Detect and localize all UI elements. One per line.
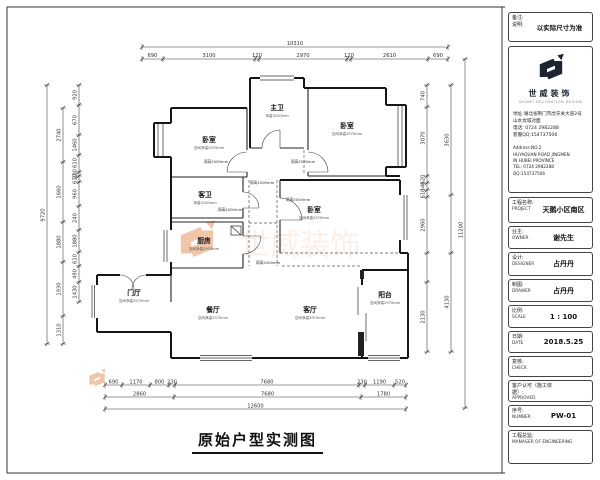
- dim-label: 7680: [261, 392, 274, 398]
- titleblock-field-owner: 业主: OWNER 谢先生: [508, 226, 593, 249]
- dim-label: 1460: [73, 138, 79, 151]
- room-height: 空间净高2970mm: [332, 131, 363, 136]
- room-height: 净高3200mm: [265, 113, 289, 118]
- room-name: 卧室: [307, 205, 321, 214]
- titleblock-field-designer: 设计: DESIGNER 占丹丹: [508, 252, 593, 276]
- dim-label: 2130: [421, 310, 427, 323]
- dim-label: 610: [73, 158, 79, 168]
- field-value: 谢先生: [537, 227, 590, 248]
- dim-label: 960: [73, 189, 79, 199]
- watermark: 世威装饰: [89, 220, 360, 386]
- field-value: 占丹丹: [537, 280, 590, 301]
- door-height-label: 洞高2000mm: [256, 260, 281, 265]
- dim-chain-right-outer: [448, 83, 454, 354]
- dim-label: 1660: [57, 185, 63, 198]
- field-value: [537, 431, 590, 463]
- field-value: 占丹丹: [537, 253, 590, 275]
- room-name: 主卫: [270, 103, 284, 112]
- room-name: 客厅: [302, 305, 317, 314]
- titleblock-field-scale: 比例: SCALE 1 : 100: [508, 305, 593, 328]
- field-value: 1 : 100: [537, 306, 590, 327]
- room-height: 空间净高2970mm: [299, 215, 330, 220]
- door-height-label: 洞高2000mm: [250, 180, 275, 185]
- dim-label: 690: [433, 53, 443, 59]
- titleblock-field-date: 日期: DATE 2018.5.25: [508, 331, 593, 353]
- titleblock-field-manager: 工程总监: MANAGER OF ENGINEERING: [508, 430, 593, 464]
- dim-label: 2740: [57, 128, 63, 141]
- room-height: 空间净高2970mm: [370, 300, 401, 305]
- dim-chain-bottom-row2: [103, 394, 408, 400]
- door-height-label: 洞高2000mm: [218, 207, 243, 212]
- dim-label: 11200: [459, 222, 465, 239]
- dim-label: 1310: [57, 323, 63, 336]
- dim-label: 1190: [373, 380, 386, 386]
- company-address-line1: 地址:湖北省荆门市虎牙关大道2号: [513, 111, 588, 118]
- room-name: 厨房: [197, 236, 211, 245]
- titleblock-company: 世威装饰 SHIWEI DECORATION DESIGN 地址:湖北省荆门市虎…: [508, 46, 593, 193]
- dim-label: 120: [344, 53, 354, 59]
- titleblock-field-check: 复核: CHECK: [508, 356, 593, 377]
- dim-label: 230: [357, 380, 367, 386]
- dim-label: 800: [155, 380, 165, 386]
- field-value: PW-01: [537, 406, 590, 426]
- company-logo-icon: [535, 53, 567, 85]
- room-height: 空间净高2970mm: [198, 315, 229, 320]
- floor-plan-svg: 世威装饰 卧室 空间净高2970mm 主卫 净高3200mm 卧室 空间净高29…: [0, 0, 505, 480]
- room-height: 空间净高2970mm: [189, 246, 220, 251]
- dim-label: 740: [421, 91, 427, 101]
- dim-label: 690: [148, 53, 158, 59]
- company-address-line2: 山水龙城对面: [513, 118, 588, 125]
- company-tagline: SHIWEI DECORATION DESIGN: [519, 100, 582, 104]
- dim-label: 610: [73, 174, 79, 184]
- dim-label: 670: [73, 115, 79, 125]
- dim-label: 610: [73, 254, 79, 264]
- room-name: 卧室: [202, 135, 216, 144]
- dim-label: 10310: [287, 41, 304, 47]
- dim-label: 2610: [383, 53, 396, 59]
- dim-labels: 10310 690 3100 120 2970 120 2610 690 972…: [41, 41, 465, 410]
- room-height: 空间净高2970mm: [119, 298, 150, 303]
- dim-label: 690: [109, 380, 119, 386]
- field-value: 天鹅小区南区: [537, 198, 590, 222]
- room-name: 阳台: [378, 290, 392, 299]
- dim-label: 920: [73, 90, 79, 100]
- dim-label: 1880: [73, 234, 79, 247]
- field-value: 2018.5.25: [537, 332, 590, 352]
- dim-label: 2970: [296, 53, 309, 59]
- door-height-label: 洞高2000mm: [286, 197, 311, 202]
- company-qq: 客服QQ:154737506: [513, 132, 588, 139]
- room-name: 餐厅: [205, 305, 220, 314]
- door-height-label: 洞高2000mm: [204, 159, 229, 164]
- titleblock-field-drawer: 制图: DRAWER 占丹丹: [508, 279, 593, 302]
- dim-label: 3070: [421, 131, 427, 144]
- room-height: 净高3200mm: [193, 200, 217, 205]
- titleblock-field-number: 序号: NUMBER PW-01: [508, 405, 593, 427]
- field-value: [537, 357, 590, 376]
- dim-label: 610: [421, 189, 427, 199]
- titleblock-field-project: 工程名称: PROJECT 天鹅小区南区: [508, 197, 593, 223]
- dim-label: 240: [73, 213, 79, 223]
- dim-label: 4130: [445, 295, 451, 308]
- dim-label: 2960: [421, 218, 427, 231]
- titleblock-note: 备注: 说明: 以实际尺寸为准: [508, 12, 593, 42]
- dim-label: 1170: [129, 380, 142, 386]
- walls: [97, 78, 408, 358]
- dim-label: 520: [395, 380, 405, 386]
- dim-label: 120: [252, 53, 262, 59]
- dim-label: 490: [73, 269, 79, 279]
- note-text: 以实际尺寸为准: [529, 13, 590, 41]
- dim-label: 3630: [445, 133, 451, 146]
- room-height: 空间净高2970mm: [295, 315, 326, 320]
- drawing-sheet: 世威装饰 卧室 空间净高2970mm 主卫 净高3200mm 卧室 空间净高29…: [0, 0, 600, 480]
- room-name: 客卫: [197, 190, 212, 199]
- company-phone: 电话: 0724 2982288: [513, 125, 588, 132]
- room-height: 空间净高2970mm: [194, 145, 225, 150]
- dim-label: 3100: [202, 53, 215, 59]
- room-name: 门厅: [127, 288, 141, 297]
- dim-label: 1930: [57, 282, 63, 295]
- dim-label: 230: [167, 380, 177, 386]
- dim-label: 1430: [73, 285, 79, 298]
- door-height-label: 洞高2000mm: [291, 159, 316, 164]
- dim-label: 1880: [57, 235, 63, 248]
- dim-chain-top: [140, 56, 450, 62]
- dim-label: 2860: [133, 392, 146, 398]
- dim-label: 9720: [41, 208, 47, 221]
- dim-label: 1780: [377, 392, 390, 398]
- dim-label: 7680: [260, 380, 273, 386]
- room-labels: 卧室 空间净高2970mm 主卫 净高3200mm 卧室 空间净高2970mm …: [119, 103, 401, 320]
- drawing-title: 原始户型实测图: [155, 429, 360, 450]
- company-name: 世威装饰: [529, 88, 573, 99]
- dim-label: 12600: [247, 404, 264, 410]
- room-name: 卧室: [340, 121, 354, 130]
- field-value: [537, 381, 590, 401]
- company-en-qq: QQ:154737506: [513, 171, 588, 177]
- titleblock-field-approved: 客户认可（施工依据）: APPROVED: [508, 380, 593, 402]
- drawing-title-text: 原始户型实测图: [192, 431, 323, 454]
